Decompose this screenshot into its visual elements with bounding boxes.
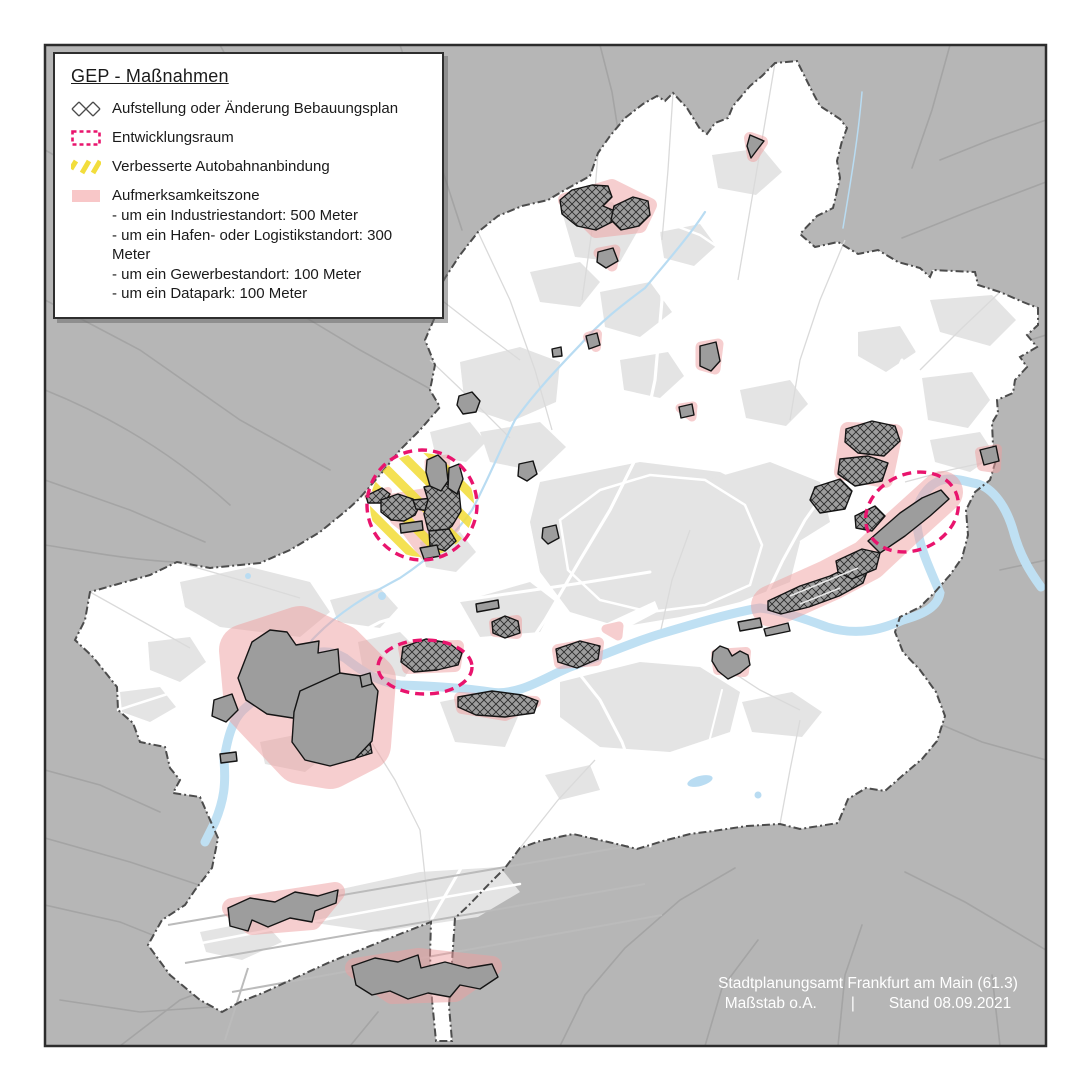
attribution-scale: Maßstab o.A. xyxy=(725,994,817,1014)
legend-item-label: Entwicklungsraum xyxy=(112,129,234,146)
subline-gewerbe: - um ein Gewerbestandort: 100 Meter xyxy=(112,265,428,285)
attention-zone-sublines: - um ein Industriestandort: 500 Meter - … xyxy=(112,206,428,304)
legend-item-label: Aufmerksamkeitszone xyxy=(112,187,260,204)
legend-item-label: Aufstellung oder Änderung Bebauungsplan xyxy=(112,100,398,117)
pink-fill-swatch-icon xyxy=(71,188,101,203)
legend-item-autobahnanbindung: Verbesserte Autobahnanbindung xyxy=(71,158,428,175)
subline-industrie: - um ein Industriestandort: 500 Meter xyxy=(112,206,428,226)
attribution-date: Stand 08.09.2021 xyxy=(889,994,1011,1014)
attribution-meta: Maßstab o.A. | Stand 08.09.2021 xyxy=(693,994,1043,1014)
map-page: GEP - Maßnahmen Aufstellung oder Änderun… xyxy=(0,0,1091,1091)
dashed-rect-swatch-icon xyxy=(71,130,101,145)
yellow-stripes-swatch-icon xyxy=(71,159,101,174)
attribution-separator: | xyxy=(851,994,855,1014)
attribution-agency: Stadtplanungsamt Frankfurt am Main (61.3… xyxy=(693,974,1043,994)
crosshatch-swatch-icon xyxy=(71,101,101,116)
legend-item-entwicklungsraum: Entwicklungsraum xyxy=(71,129,428,146)
map-attribution: Stadtplanungsamt Frankfurt am Main (61.3… xyxy=(693,974,1043,1014)
legend-item-aufmerksamkeitszone: Aufmerksamkeitszone xyxy=(71,187,428,204)
legend-box: GEP - Maßnahmen Aufstellung oder Änderun… xyxy=(53,52,444,319)
subline-hafen-logistik: - um ein Hafen- oder Logistikstandort: 3… xyxy=(112,226,428,265)
legend-item-label: Verbesserte Autobahnanbindung xyxy=(112,158,330,175)
legend-title: GEP - Maßnahmen xyxy=(71,66,428,87)
subline-datapark: - um ein Datapark: 100 Meter xyxy=(112,284,428,304)
legend-item-bebauungsplan: Aufstellung oder Änderung Bebauungsplan xyxy=(71,100,428,117)
